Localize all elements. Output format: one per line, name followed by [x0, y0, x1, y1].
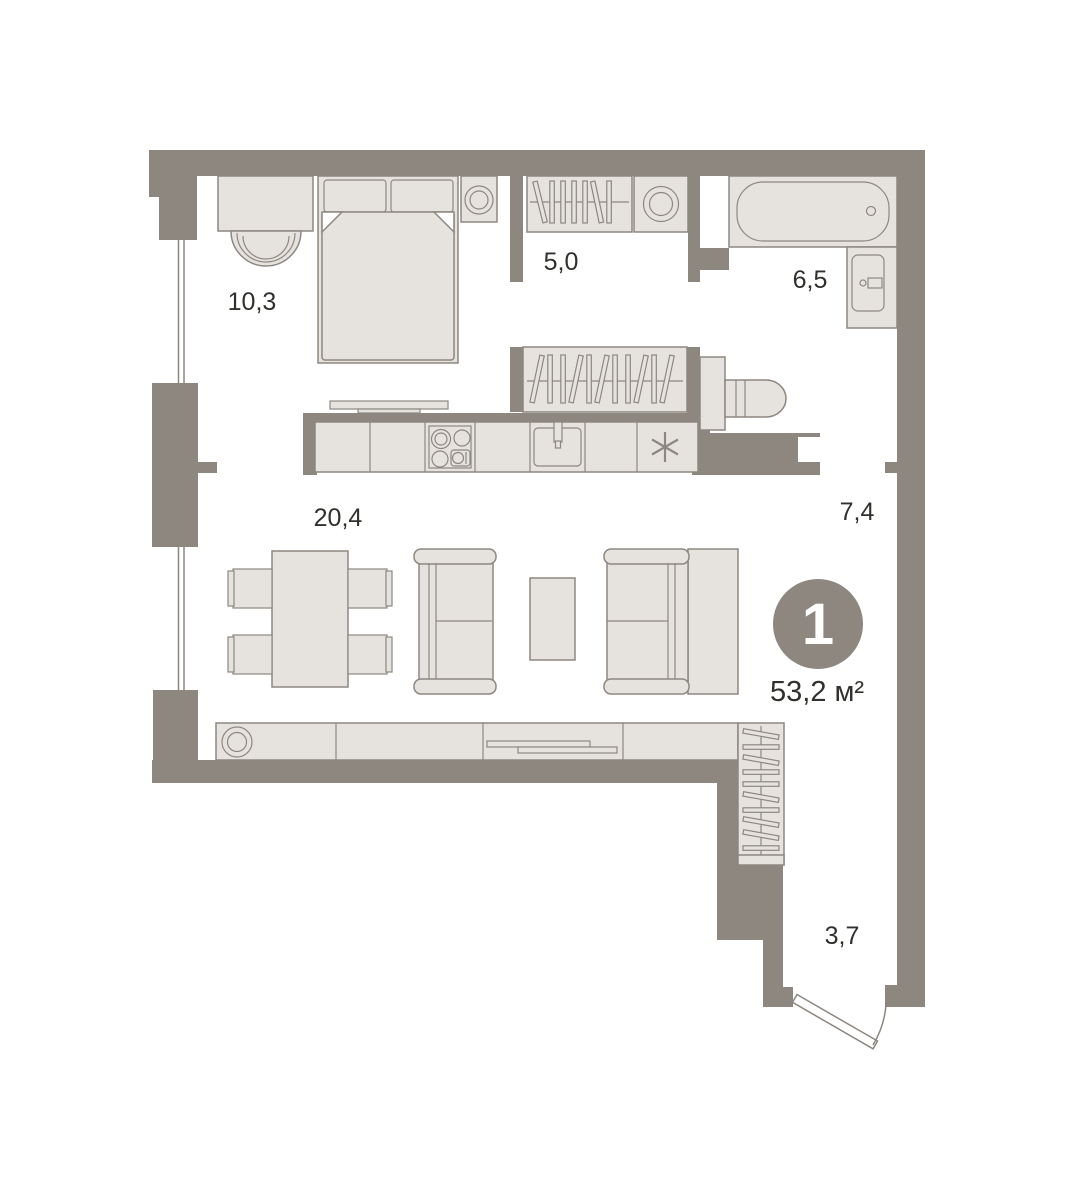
living-room-furniture	[228, 549, 738, 694]
dining-chair	[348, 569, 392, 608]
door-jamb-right	[885, 985, 897, 1007]
sofa-chaise	[688, 549, 738, 694]
room-label-wardrobe: 5,0	[544, 248, 579, 276]
wall-kitchen-partition	[303, 413, 710, 422]
wall-top	[149, 150, 925, 176]
pillow	[324, 180, 386, 212]
window-lower	[179, 547, 185, 690]
entrance-door	[793, 995, 887, 1049]
wall-notch	[149, 197, 159, 240]
toilet-cistern	[700, 357, 725, 430]
badge-rooms-count: 1	[802, 592, 834, 657]
nightstand	[461, 176, 497, 222]
blanket	[322, 212, 454, 360]
bathroom-sink	[847, 247, 897, 328]
toilet-bowl	[725, 380, 786, 417]
wall-corridor-left-fill	[717, 863, 783, 940]
wardrobe-base	[738, 855, 784, 865]
bedroom-tv	[330, 401, 448, 413]
dining-chair	[348, 635, 392, 674]
wall-bathroom-foot	[700, 248, 729, 270]
kitchen-faucet	[554, 422, 562, 442]
wall-right	[897, 150, 925, 1007]
room-label-bathroom: 6,5	[793, 266, 828, 294]
wall-wardrobe-bathroom	[688, 176, 700, 282]
wall-left-mid-pier	[152, 383, 198, 547]
wall-right-tab	[885, 462, 897, 473]
pillow	[391, 180, 453, 212]
wardrobe-room-furniture	[527, 176, 688, 232]
washing-machine	[634, 176, 688, 232]
wall-left-tab	[198, 462, 217, 473]
bathroom-furniture	[700, 176, 897, 430]
door-leaf	[793, 995, 878, 1049]
dining-table	[272, 551, 348, 687]
room-label-entry: 3,7	[825, 922, 860, 950]
sofa-armrest	[604, 679, 689, 694]
sideboard	[216, 723, 738, 760]
desk-chair	[231, 231, 301, 266]
double-bed	[318, 176, 458, 363]
coffee-table	[530, 578, 575, 660]
corner-sofa	[604, 549, 738, 694]
wall-corridor-left-lower	[763, 940, 783, 987]
dining-chair	[228, 635, 272, 674]
tv	[487, 741, 590, 747]
window-upper	[179, 240, 185, 383]
floor-plan-svg: 10,3 5,0 6,5 7,4 20,4 3,7 1 53,2 м²	[0, 0, 1075, 1200]
desk	[218, 176, 313, 231]
hall-wardrobe	[523, 347, 687, 412]
toilet	[700, 357, 786, 430]
sofa-armrest	[414, 679, 496, 694]
room-label-hallway: 7,4	[840, 498, 875, 526]
loveseat-sofa	[414, 549, 496, 694]
sofa-armrest	[604, 549, 689, 564]
sofa-armrest	[414, 549, 496, 564]
room-label-living-kitchen: 20,4	[314, 504, 363, 532]
bathtub	[729, 176, 897, 247]
wall-bottom	[152, 760, 738, 783]
closet-with-hangers	[527, 176, 632, 232]
wardrobe-end-cap-left	[510, 347, 523, 412]
wall-bedroom-wardrobe	[510, 176, 523, 282]
floor-plan: 10,3 5,0 6,5 7,4 20,4 3,7 1 53,2 м²	[0, 0, 1075, 1200]
dining-chair	[228, 569, 272, 608]
apartment-badge: 1 53,2 м²	[770, 579, 864, 708]
kitchen-counter	[315, 422, 698, 472]
tv	[518, 747, 617, 753]
duct-shaft	[798, 437, 820, 462]
entry-wardrobe	[738, 723, 784, 865]
door-jamb-left	[763, 987, 793, 1007]
room-label-bedroom: 10,3	[228, 288, 277, 316]
badge-total-area: 53,2 м²	[770, 676, 864, 708]
